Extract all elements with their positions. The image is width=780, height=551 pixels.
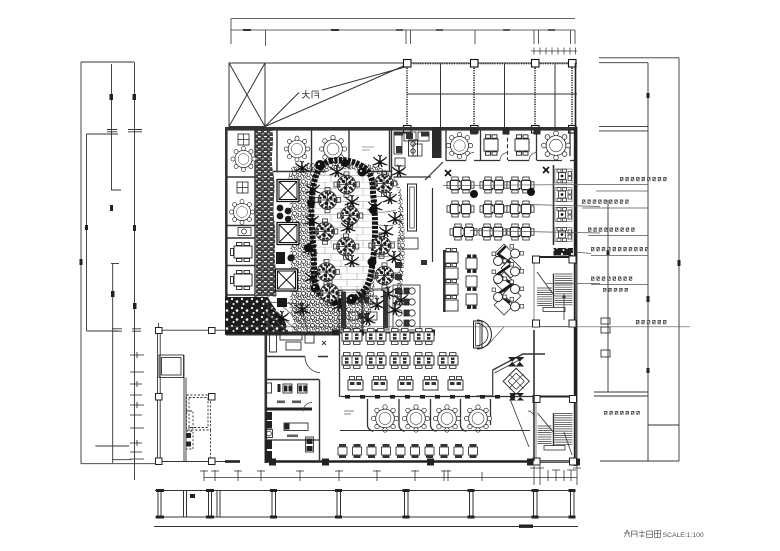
svg-text:SCALE:1:100: SCALE:1:100: [663, 532, 704, 539]
